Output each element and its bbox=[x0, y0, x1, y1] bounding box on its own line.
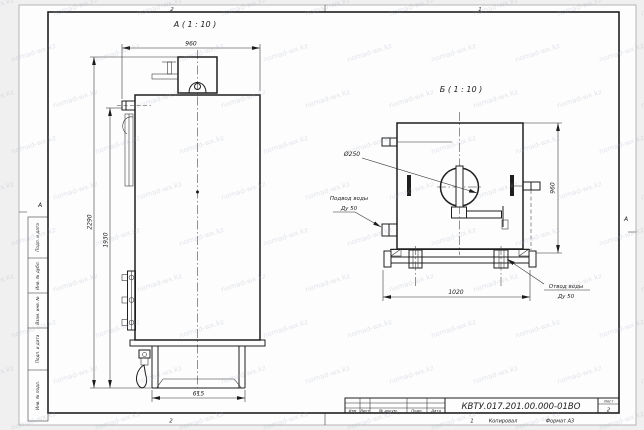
zone-right-letter: А bbox=[623, 216, 628, 223]
inlet-label-line1: Подвод воды bbox=[330, 196, 369, 202]
inlet-label-line2: Ду 50 bbox=[340, 206, 358, 212]
outlet-label-line2: Ду 50 bbox=[557, 294, 575, 300]
zone-bottom-left: 2 bbox=[169, 419, 173, 425]
tb-sheet-number: 2 bbox=[607, 407, 611, 413]
tb-col-list: Лист bbox=[359, 408, 370, 413]
field-inv-dubl: Инв. № дубл. bbox=[35, 261, 40, 290]
field-vzam-inv: Взам. инв. № bbox=[35, 296, 40, 325]
tb-col-podp: Подп. bbox=[411, 408, 423, 413]
view-a-label: А ( 1 : 10 ) bbox=[173, 20, 216, 29]
dim-b-height-text: 960 bbox=[550, 182, 557, 194]
engineering-drawing: 2 1 2 1 А А Копировал Формат А3 Подп. и … bbox=[0, 0, 644, 430]
tb-doc-number: КВТУ.017.201.00.000-01ВО bbox=[462, 402, 581, 412]
center-mark bbox=[196, 191, 199, 194]
drawing-canvas: 2 1 2 1 А А Копировал Формат А3 Подп. и … bbox=[0, 0, 644, 430]
dim-a-base-text: 615 bbox=[193, 391, 205, 398]
zone-left-letter: А bbox=[37, 202, 42, 209]
tb-sheet-label: Лист bbox=[603, 399, 614, 404]
dim-b-width-text: 1020 bbox=[448, 289, 463, 296]
dim-a-height-total-text: 2290 bbox=[87, 214, 94, 229]
sheet-outline bbox=[19, 5, 636, 425]
view-b-label: Б ( 1 : 10 ) bbox=[440, 85, 482, 94]
dim-a-width-text: 960 bbox=[185, 41, 197, 48]
zone-top-left: 2 bbox=[170, 7, 174, 13]
field-podp-data-2: Подп. и дата bbox=[35, 334, 40, 363]
field-inv-podl: Инв. № подл. bbox=[35, 381, 40, 410]
tb-col-data: Дата bbox=[430, 408, 442, 413]
tb-col-izm: Изм bbox=[349, 408, 357, 413]
